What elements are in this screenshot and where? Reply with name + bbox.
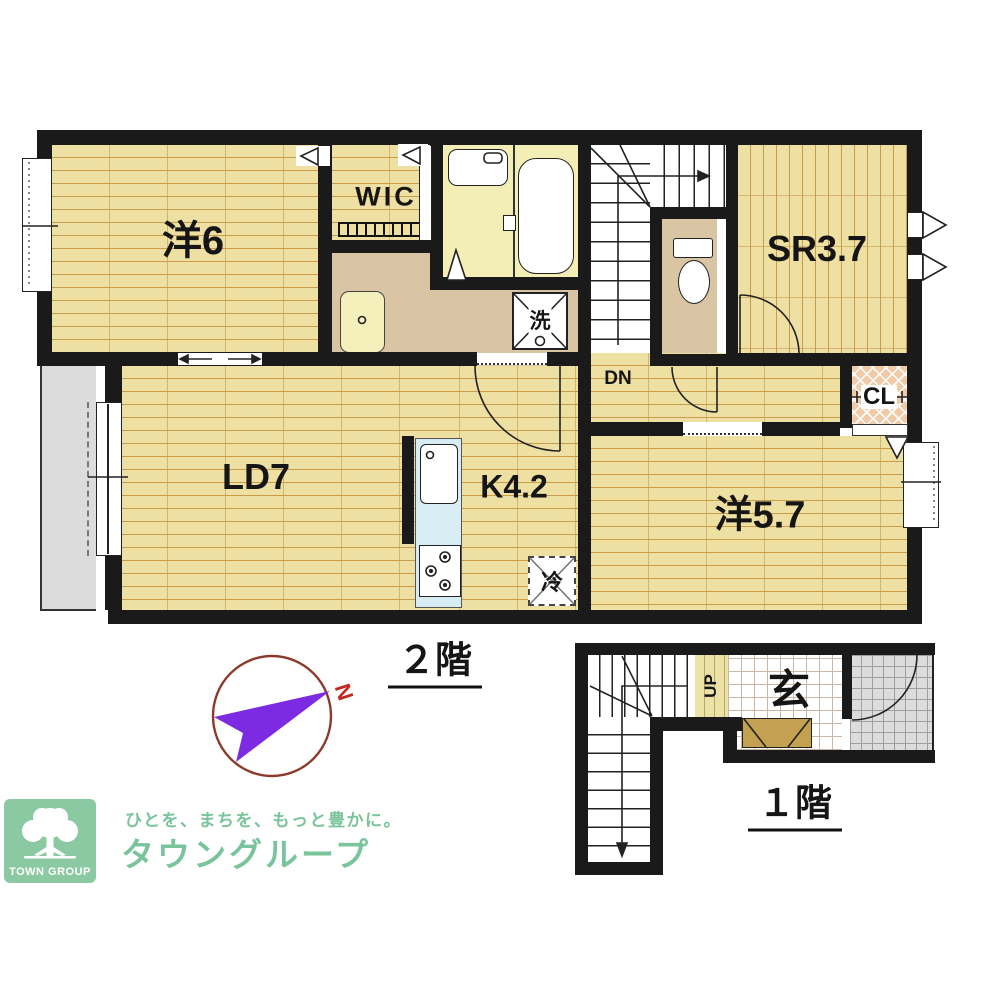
floorplan-canvas: N 洋6 WIC SR3.7 LD7 K4.2 洋5.7 CL DN 冷 洗 玄… [0, 0, 1000, 1001]
wall [591, 422, 683, 436]
wall [430, 277, 578, 290]
room-label-western57: 洋5.7 [715, 484, 806, 539]
window-balcony-sliding [96, 402, 122, 556]
tree-icon [4, 803, 96, 865]
window-western6-left [22, 158, 52, 292]
room-label-kitchen: K4.2 [480, 469, 548, 506]
mark-up: UP [701, 674, 721, 698]
vent-arrow-1 [923, 212, 946, 238]
room-label-ld: LD7 [222, 456, 290, 498]
wall [726, 145, 738, 366]
bathtub [518, 158, 574, 274]
wall [547, 352, 590, 366]
kitchen-sink [420, 444, 458, 504]
bath-divider [513, 145, 515, 277]
wall [840, 366, 852, 428]
vent-arrow-2 [923, 254, 946, 280]
vent-window-sr-1 [907, 212, 923, 238]
stairs1f-top-run [588, 655, 695, 717]
compass-needle [214, 691, 330, 762]
wall [105, 556, 122, 610]
window-balcony-midline [107, 404, 109, 554]
window-dots [28, 162, 30, 288]
wall [650, 354, 738, 366]
wall [332, 352, 477, 366]
vent-window-sr-2 [907, 254, 923, 280]
wall [842, 655, 852, 719]
stairs1f-down-run [588, 717, 650, 862]
door-marker-western6 [296, 146, 330, 166]
wall [726, 353, 922, 366]
wall [575, 643, 935, 655]
room-label-sr: SR3.7 [767, 228, 867, 270]
wall [762, 422, 840, 436]
mark-fridge: 冷 [541, 565, 563, 597]
toilet-bowl [678, 260, 710, 304]
wall [728, 750, 935, 763]
wash-basin [340, 291, 385, 353]
town-group-logo: TOWN GROUP [4, 799, 96, 883]
stairs2f-landing [650, 145, 726, 207]
closet-cl-door [852, 424, 908, 436]
bath-handle [503, 215, 516, 231]
wall [578, 366, 591, 610]
wic-hanger-rail [338, 222, 424, 237]
wall [575, 643, 588, 875]
compass-north-label: N [330, 681, 359, 704]
compass-circle [213, 656, 331, 776]
door-opening-corridor [477, 353, 547, 365]
entrance-step [742, 718, 812, 748]
wall [37, 130, 922, 145]
mark-dn: DN [604, 368, 631, 390]
room-label-wic: WIC [355, 182, 416, 213]
wall [108, 610, 922, 624]
door-marker-wic [398, 144, 428, 166]
room-label-cl: CL [861, 385, 897, 409]
wall [332, 240, 433, 253]
stairs2f-run [591, 145, 650, 357]
bath-sink-counter [448, 149, 508, 186]
wall [318, 145, 332, 366]
balcony-curtain-line [87, 402, 89, 556]
wall [578, 145, 591, 366]
stove [419, 545, 461, 597]
mark-laundry: 洗 [529, 305, 552, 335]
sliding-door-western6 [178, 353, 262, 365]
wall [402, 436, 414, 544]
porch [850, 655, 934, 755]
logo-company-name: タウングループ [121, 828, 371, 876]
wall [907, 130, 922, 624]
wall [650, 717, 663, 875]
window-dots [933, 446, 935, 524]
wall [650, 207, 738, 219]
sliding-door-western57 [683, 423, 762, 435]
logo-badge-text: TOWN GROUP [4, 866, 96, 878]
toilet-tank [673, 238, 713, 258]
room-label-western6: 洋6 [162, 208, 224, 266]
wall [105, 366, 122, 402]
room-label-entrance: 玄 [768, 657, 810, 718]
wall [650, 207, 662, 366]
floor2-title: ２階 [388, 630, 482, 689]
floor1-title: １階 [748, 773, 842, 832]
